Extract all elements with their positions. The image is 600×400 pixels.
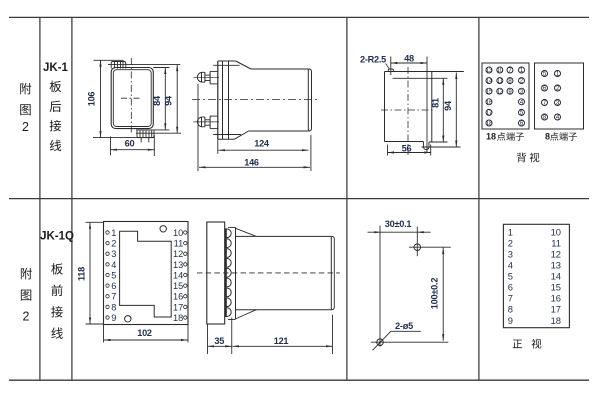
svg-text:10: 10 bbox=[496, 68, 503, 74]
svg-text:3: 3 bbox=[111, 249, 116, 259]
svg-text:11: 11 bbox=[551, 237, 561, 248]
svg-text:12: 12 bbox=[496, 89, 503, 95]
svg-text:48: 48 bbox=[404, 54, 414, 64]
svg-text:5: 5 bbox=[543, 72, 547, 78]
svg-text:14: 14 bbox=[173, 270, 183, 280]
svg-text:18: 18 bbox=[486, 121, 493, 127]
svg-text:16: 16 bbox=[173, 292, 183, 302]
svg-text:12: 12 bbox=[551, 248, 561, 259]
svg-text:102: 102 bbox=[137, 328, 152, 338]
svg-text:100±0.2: 100±0.2 bbox=[429, 278, 439, 310]
svg-text:94: 94 bbox=[443, 100, 453, 111]
svg-text:3: 3 bbox=[556, 101, 560, 107]
svg-text:1: 1 bbox=[556, 72, 560, 78]
svg-text:JK-1: JK-1 bbox=[43, 62, 69, 74]
svg-text:7: 7 bbox=[543, 101, 547, 107]
svg-text:5: 5 bbox=[508, 271, 513, 282]
svg-text:2: 2 bbox=[520, 79, 524, 85]
svg-text:4: 4 bbox=[111, 260, 116, 270]
svg-text:14: 14 bbox=[551, 271, 561, 282]
svg-text:6: 6 bbox=[111, 281, 116, 291]
svg-text:8: 8 bbox=[543, 115, 547, 121]
svg-text:5: 5 bbox=[520, 111, 524, 117]
svg-text:15: 15 bbox=[173, 281, 183, 291]
svg-text:18: 18 bbox=[173, 313, 183, 323]
svg-text:10: 10 bbox=[551, 226, 561, 237]
svg-text:8: 8 bbox=[545, 132, 550, 142]
svg-text:4: 4 bbox=[556, 115, 560, 121]
svg-text:2: 2 bbox=[556, 86, 560, 92]
svg-text:2: 2 bbox=[508, 237, 513, 248]
svg-text:13: 13 bbox=[173, 260, 183, 270]
svg-text:146: 146 bbox=[244, 158, 259, 168]
svg-text:18: 18 bbox=[486, 132, 496, 142]
svg-text:11: 11 bbox=[174, 239, 184, 249]
svg-text:16: 16 bbox=[486, 100, 493, 106]
svg-text:35: 35 bbox=[214, 336, 224, 346]
svg-text:2-ø5: 2-ø5 bbox=[395, 321, 413, 331]
svg-text:6: 6 bbox=[543, 86, 547, 92]
svg-text:60: 60 bbox=[125, 138, 135, 148]
svg-text:6: 6 bbox=[508, 282, 513, 293]
svg-text:17: 17 bbox=[551, 304, 561, 315]
svg-text:94: 94 bbox=[164, 95, 174, 106]
svg-text:4: 4 bbox=[520, 100, 524, 106]
svg-text:106: 106 bbox=[87, 92, 97, 107]
svg-text:15: 15 bbox=[551, 282, 561, 293]
svg-text:3: 3 bbox=[508, 248, 513, 259]
svg-text:5: 5 bbox=[111, 270, 116, 280]
svg-text:13: 13 bbox=[551, 259, 561, 270]
svg-text:18: 18 bbox=[551, 315, 561, 326]
svg-text:JK-1Q: JK-1Q bbox=[40, 231, 74, 243]
svg-text:1: 1 bbox=[111, 228, 116, 238]
svg-text:9: 9 bbox=[508, 315, 513, 326]
svg-text:6: 6 bbox=[520, 121, 524, 127]
svg-text:15: 15 bbox=[486, 89, 493, 95]
svg-text:1: 1 bbox=[520, 68, 524, 74]
svg-text:30±0.1: 30±0.1 bbox=[385, 219, 412, 229]
svg-text:7: 7 bbox=[508, 68, 512, 74]
svg-text:16: 16 bbox=[551, 293, 561, 304]
svg-text:9: 9 bbox=[508, 89, 512, 95]
svg-text:8: 8 bbox=[508, 304, 513, 315]
svg-text:2: 2 bbox=[22, 120, 29, 134]
svg-text:14: 14 bbox=[486, 79, 493, 85]
svg-text:9: 9 bbox=[111, 313, 116, 323]
svg-text:11: 11 bbox=[497, 79, 504, 85]
svg-text:7: 7 bbox=[111, 292, 116, 302]
svg-text:7: 7 bbox=[508, 293, 513, 304]
svg-text:4: 4 bbox=[508, 259, 513, 270]
svg-text:1: 1 bbox=[508, 226, 513, 237]
svg-text:10: 10 bbox=[173, 228, 183, 238]
svg-text:17: 17 bbox=[173, 302, 183, 312]
svg-text:8: 8 bbox=[508, 79, 512, 85]
svg-text:12: 12 bbox=[173, 249, 183, 259]
svg-text:121: 121 bbox=[274, 336, 289, 346]
svg-text:2: 2 bbox=[23, 310, 30, 324]
svg-text:2-R2.5: 2-R2.5 bbox=[360, 54, 386, 64]
svg-text:3: 3 bbox=[520, 89, 524, 95]
svg-text:8: 8 bbox=[111, 302, 116, 312]
svg-text:81: 81 bbox=[430, 98, 440, 108]
svg-text:17: 17 bbox=[486, 111, 493, 117]
svg-text:13: 13 bbox=[486, 68, 493, 74]
svg-text:56: 56 bbox=[402, 143, 412, 153]
svg-text:124: 124 bbox=[254, 139, 270, 149]
svg-text:118: 118 bbox=[76, 267, 86, 281]
svg-text:84: 84 bbox=[152, 95, 162, 106]
svg-text:2: 2 bbox=[111, 239, 116, 249]
